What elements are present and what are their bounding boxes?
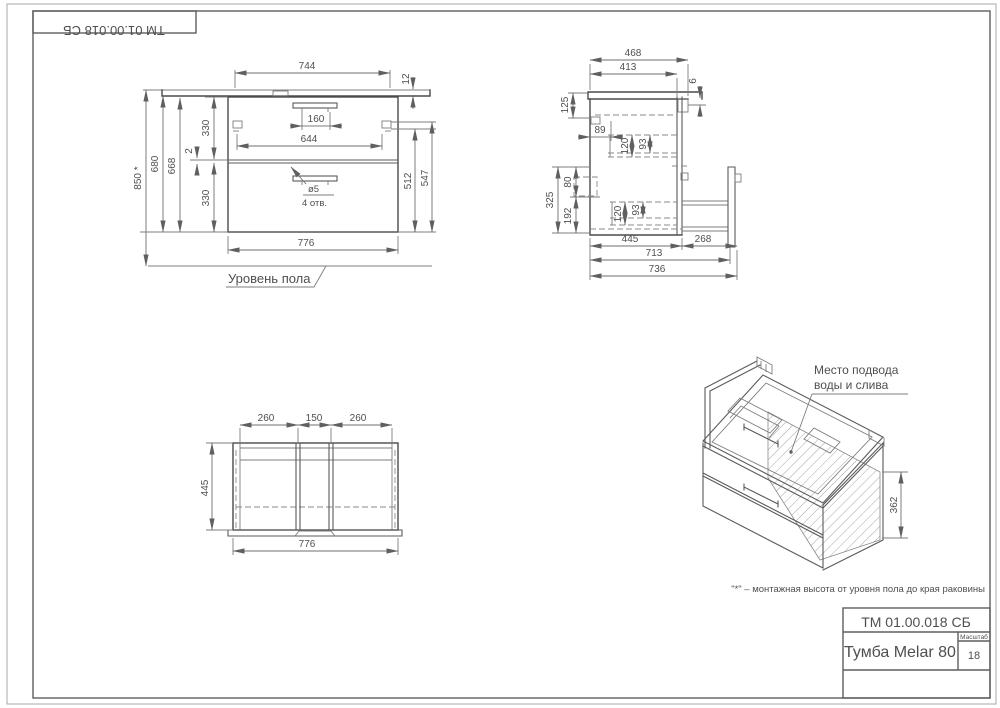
side-view-dimensions: 468 413 6 125 89 120 93 325	[545, 48, 737, 280]
dim-445-top: 445	[200, 479, 211, 496]
dim-93-upper: 93	[638, 138, 649, 150]
iso-view: Место подвода воды и слива 362	[703, 357, 908, 570]
floor-level: Уровень пола	[148, 266, 432, 287]
dim-330-bottom: 330	[201, 189, 212, 206]
dim-120-upper: 120	[620, 137, 631, 154]
dim-12: 12	[401, 73, 412, 85]
dim-744: 744	[299, 61, 316, 72]
dim-850: 850 *	[133, 166, 144, 189]
dim-512: 512	[403, 172, 414, 189]
dim-547: 547	[420, 169, 431, 186]
dim-644: 644	[301, 134, 318, 145]
dim-120-lower: 120	[613, 205, 624, 222]
dim-80: 80	[563, 176, 574, 188]
iso-dimension-362: 362	[882, 472, 908, 538]
hole-count: 4 отв.	[302, 198, 327, 209]
right-clip	[382, 121, 391, 131]
dim-160: 160	[308, 114, 325, 125]
drawing-sheet: ТМ 01.00.018 СБ 744	[0, 0, 1000, 708]
title-block-code: ТМ 01.00.018 СБ	[861, 614, 971, 630]
top-view-dimensions: 260 150 260 445 776	[200, 413, 398, 555]
dim-413: 413	[620, 62, 637, 73]
top-view: 260 150 260 445 776	[200, 413, 402, 555]
dim-445-side: 445	[622, 234, 639, 245]
dim-330-top: 330	[201, 119, 212, 136]
front-view: 744 12 160 644 850 * 680 668 330	[133, 61, 436, 287]
top-view-object	[228, 443, 402, 536]
scale-label: Масштаб	[960, 633, 988, 641]
note-line1: Место подвода	[814, 363, 899, 377]
dim-362: 362	[889, 496, 900, 513]
dim-260-right: 260	[350, 413, 367, 424]
dim-192: 192	[563, 207, 574, 224]
stamp-top-left: ТМ 01.00.018 СБ	[33, 11, 196, 38]
wall-rail	[728, 167, 741, 247]
dim-468: 468	[625, 48, 642, 59]
dim-93-lower: 93	[631, 204, 642, 216]
dim-325: 325	[545, 191, 556, 208]
footnote: "*" – монтажная высота от уровня пола до…	[731, 584, 985, 595]
dim-6: 6	[688, 78, 699, 84]
dim-668: 668	[167, 157, 178, 174]
paper-edge	[7, 4, 996, 704]
hole-callout: ø5 4 отв.	[291, 167, 334, 209]
title-block: ТМ 01.00.018 СБ Тумба Melar 80 Масштаб 1…	[843, 608, 990, 698]
front-view-object	[143, 90, 430, 232]
dim-736: 736	[649, 264, 666, 275]
scale-value: 18	[968, 650, 980, 662]
dim-2: 2	[184, 148, 195, 154]
note-line2: воды и слива	[814, 378, 889, 392]
stamp-text: ТМ 01.00.018 СБ	[63, 23, 165, 38]
dim-125: 125	[560, 96, 571, 113]
dim-150: 150	[306, 413, 323, 424]
hole-diameter: ø5	[308, 184, 319, 195]
dim-776-front: 776	[298, 238, 315, 249]
dim-680: 680	[150, 155, 161, 172]
plumbing-zone-hatch	[768, 412, 880, 560]
leader-dot	[789, 450, 792, 453]
left-clip	[233, 121, 242, 131]
dim-89: 89	[594, 125, 606, 136]
side-view: 468 413 6 125 89 120 93 325	[545, 48, 741, 280]
floor-level-label: Уровень пола	[228, 271, 311, 286]
side-view-object	[574, 92, 741, 247]
dim-268: 268	[695, 234, 712, 245]
dim-260-left: 260	[258, 413, 275, 424]
dim-713: 713	[646, 248, 663, 259]
dim-776-top: 776	[299, 539, 316, 550]
title-block-product: Тумба Melar 80	[844, 644, 956, 661]
